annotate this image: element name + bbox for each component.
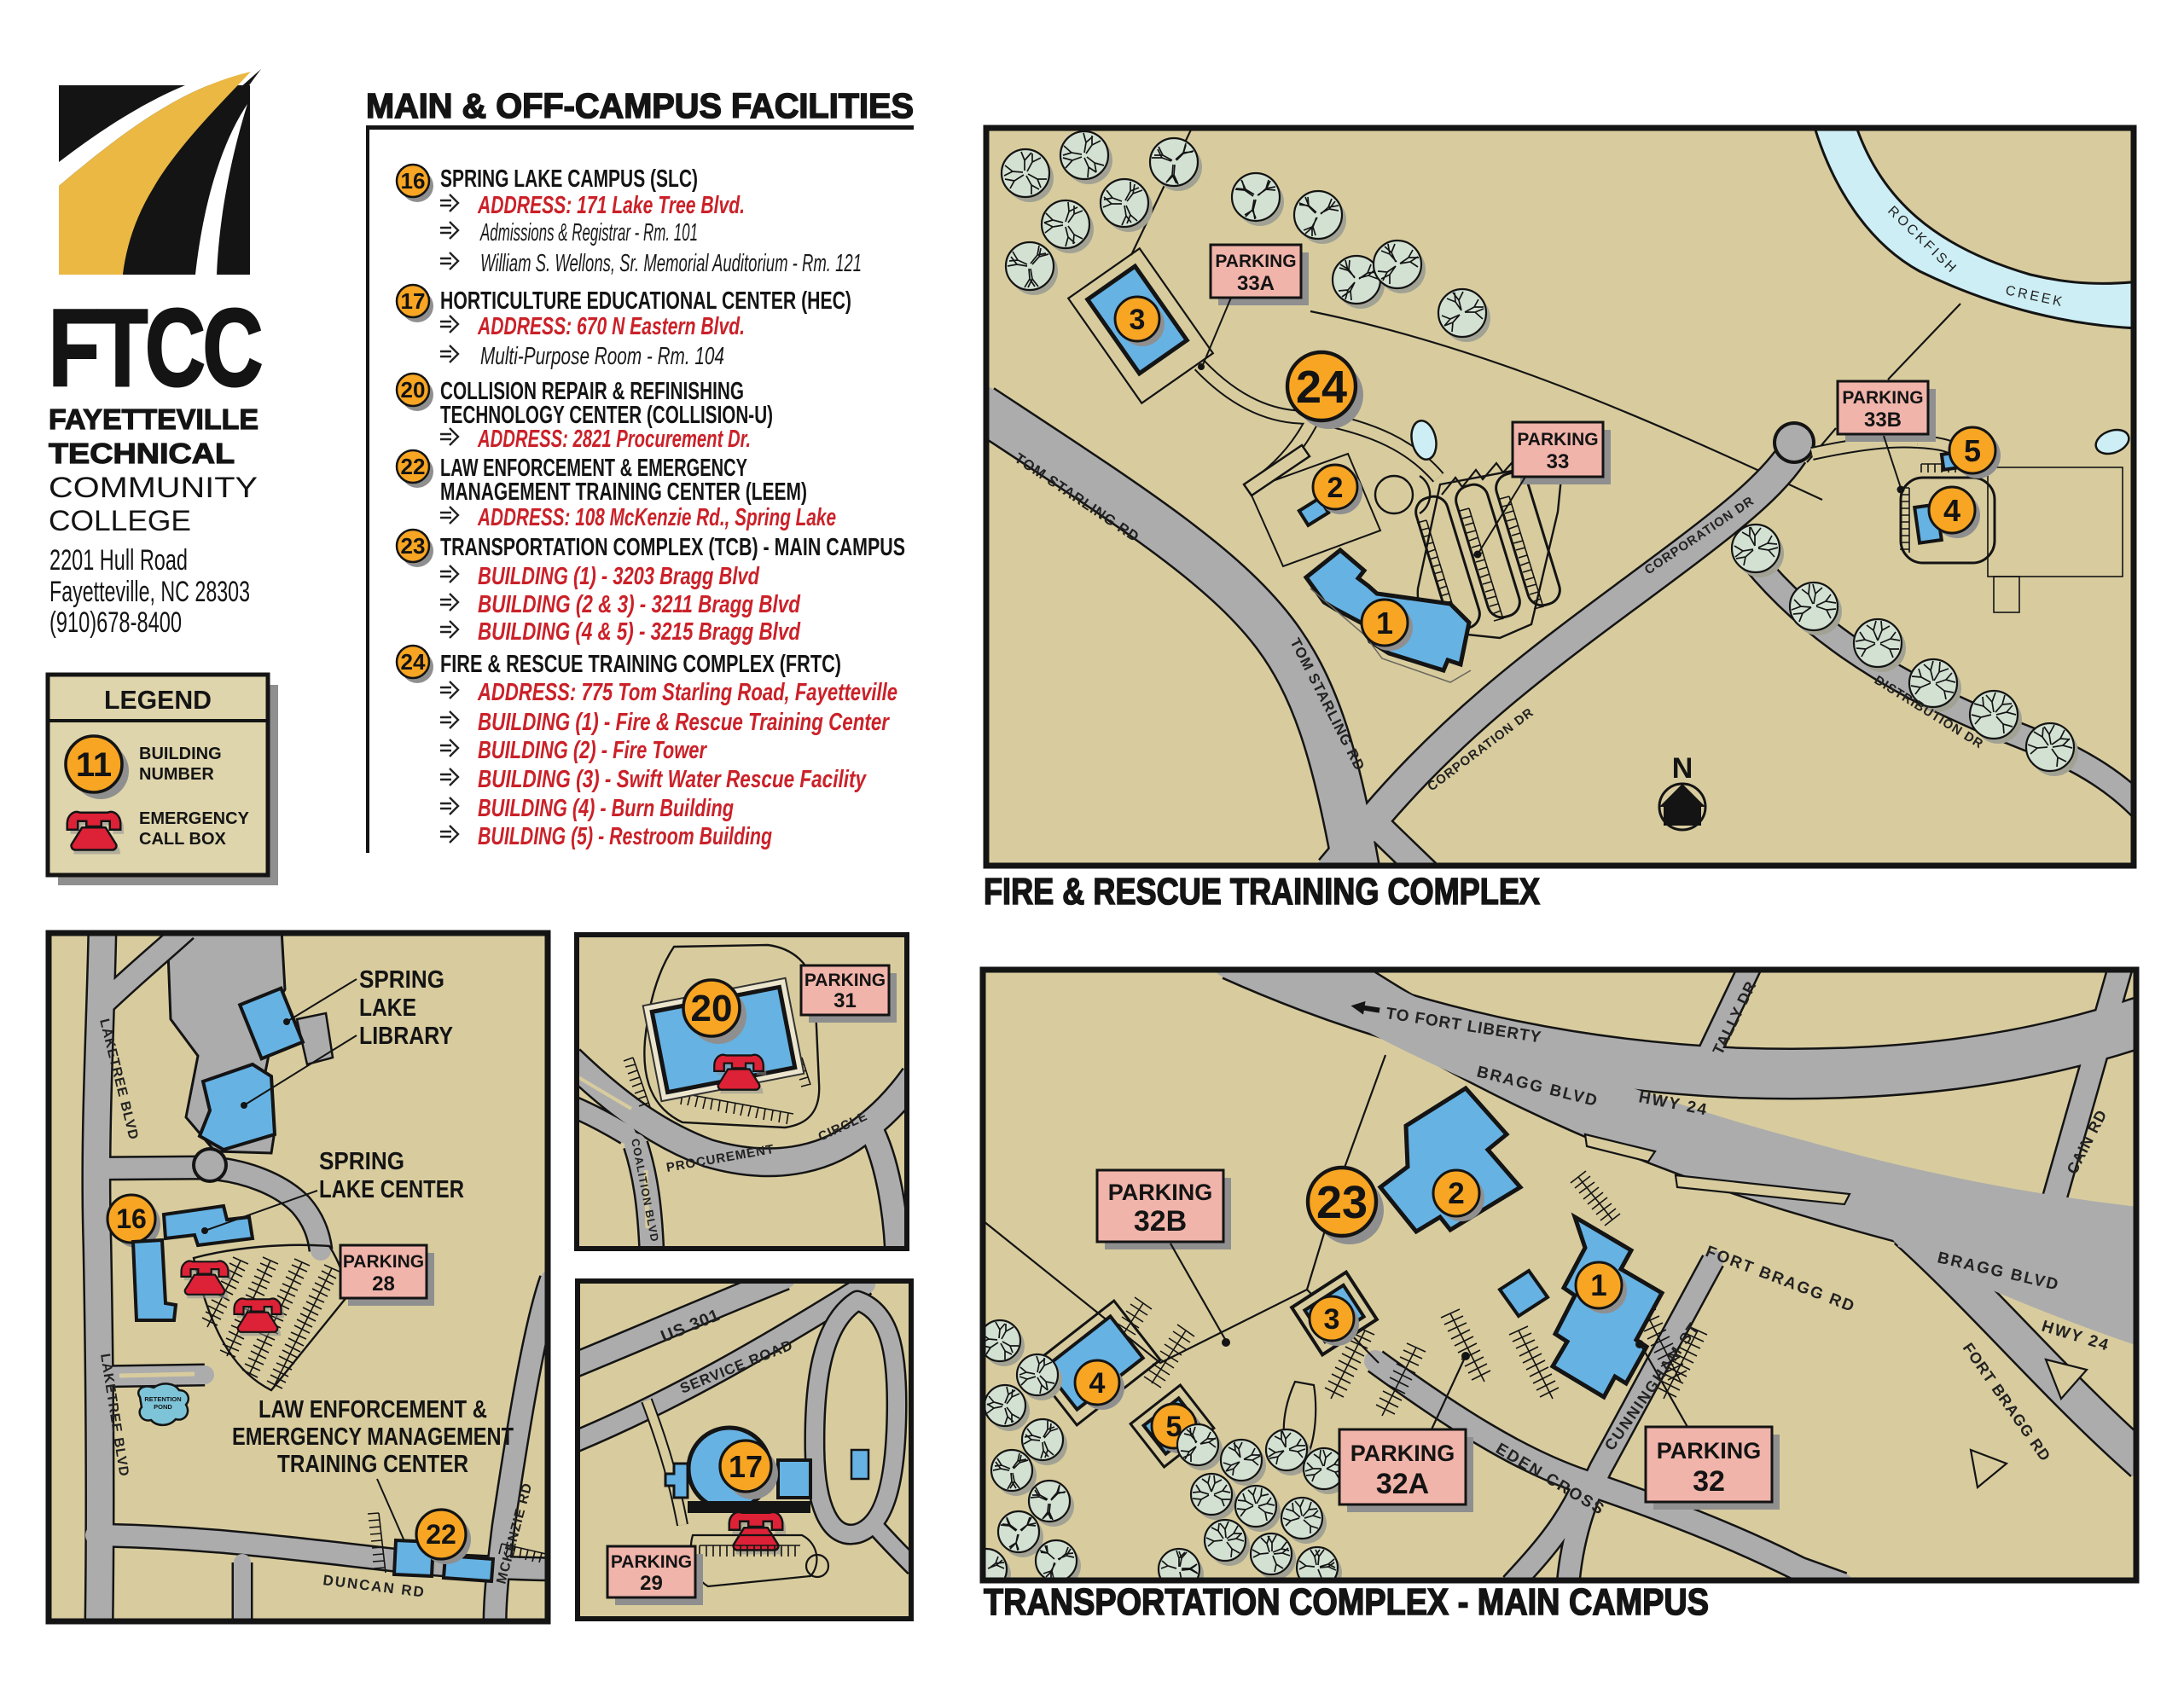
- svg-text:LIBRARY: LIBRARY: [359, 1023, 453, 1050]
- svg-text:COMMUNITY: COMMUNITY: [49, 472, 258, 504]
- svg-text:BUILDING (5) - Restroom Buildi: BUILDING (5) - Restroom Building: [478, 823, 772, 850]
- svg-text:(910)678-8400: (910)678-8400: [49, 606, 182, 639]
- svg-text:TRAINING CENTER: TRAINING CENTER: [277, 1451, 468, 1478]
- svg-text:FTCC: FTCC: [49, 287, 260, 409]
- svg-text:BUILDING (2 & 3) - 3211 Bragg: BUILDING (2 & 3) - 3211 Bragg Blvd: [478, 591, 801, 618]
- svg-text:PARKING: PARKING: [1350, 1441, 1455, 1466]
- svg-text:22: 22: [401, 454, 426, 479]
- svg-text:LAKE: LAKE: [359, 994, 416, 1022]
- svg-text:BUILDING (2) - Fire Tower: BUILDING (2) - Fire Tower: [478, 737, 707, 764]
- svg-text:17: 17: [729, 1449, 763, 1484]
- svg-text:TRANSPORTATION COMPLEX - MAIN: TRANSPORTATION COMPLEX - MAIN CAMPUS: [984, 1581, 1709, 1623]
- svg-text:29: 29: [640, 1572, 663, 1595]
- svg-text:2: 2: [1448, 1177, 1464, 1210]
- svg-text:PARKING: PARKING: [1657, 1438, 1762, 1464]
- svg-text:16: 16: [116, 1203, 147, 1234]
- svg-text:33B: 33B: [1864, 409, 1902, 432]
- svg-text:22: 22: [426, 1519, 456, 1550]
- svg-text:CALL BOX: CALL BOX: [139, 830, 227, 849]
- svg-text:Fayetteville, NC 28303: Fayetteville, NC 28303: [49, 576, 250, 608]
- svg-text:33A: 33A: [1237, 272, 1275, 295]
- svg-text:FIRE & RESCUE TRAINING COMPLEX: FIRE & RESCUE TRAINING COMPLEX (FRTC): [440, 651, 841, 678]
- svg-text:SPRING: SPRING: [359, 966, 444, 994]
- svg-text:NUMBER: NUMBER: [139, 765, 214, 784]
- svg-text:BUILDING (1) - Fire & Rescue T: BUILDING (1) - Fire & Rescue Training Ce…: [478, 709, 890, 736]
- svg-text:TECHNICAL: TECHNICAL: [49, 438, 235, 469]
- svg-text:PARKING: PARKING: [1108, 1180, 1213, 1205]
- svg-text:EMERGENCY MANAGEMENT: EMERGENCY MANAGEMENT: [232, 1423, 514, 1451]
- svg-text:32A: 32A: [1376, 1468, 1429, 1500]
- svg-text:FAYETTEVILLE: FAYETTEVILLE: [49, 403, 258, 435]
- svg-text:BUILDING (4 & 5) - 3215 Bragg: BUILDING (4 & 5) - 3215 Bragg Blvd: [478, 618, 801, 646]
- svg-text:20: 20: [691, 988, 733, 1029]
- svg-text:FIRE & RESCUE TRAINING COMPLEX: FIRE & RESCUE TRAINING COMPLEX: [984, 871, 1540, 913]
- svg-text:32B: 32B: [1134, 1205, 1187, 1238]
- svg-text:31: 31: [834, 989, 857, 1012]
- svg-text:33: 33: [1547, 450, 1570, 473]
- svg-text:COLLEGE: COLLEGE: [49, 505, 191, 537]
- svg-text:PARKING: PARKING: [343, 1252, 424, 1272]
- svg-text:17: 17: [401, 288, 426, 314]
- svg-text:5: 5: [1964, 433, 1981, 468]
- svg-text:SPRING LAKE CAMPUS (SLC): SPRING LAKE CAMPUS (SLC): [440, 165, 698, 193]
- svg-text:BUILDING (1) - 3203 Bragg Blvd: BUILDING (1) - 3203 Bragg Blvd: [478, 563, 760, 590]
- svg-text:2: 2: [1327, 472, 1344, 504]
- svg-text:23: 23: [401, 533, 426, 559]
- svg-text:SPRING: SPRING: [319, 1148, 404, 1175]
- svg-text:4: 4: [1089, 1367, 1106, 1400]
- svg-text:4: 4: [1943, 493, 1960, 528]
- svg-text:Admissions & Registrar - Rm. 1: Admissions & Registrar - Rm. 101: [479, 219, 698, 246]
- svg-text:32: 32: [1693, 1465, 1725, 1498]
- svg-text:MAIN & OFF-CAMPUS FACILITIES: MAIN & OFF-CAMPUS FACILITIES: [366, 86, 914, 125]
- svg-text:BUILDING: BUILDING: [139, 745, 222, 763]
- svg-text:PARKING: PARKING: [804, 971, 886, 990]
- svg-text:1: 1: [1376, 606, 1393, 641]
- svg-text:16: 16: [401, 168, 426, 194]
- svg-text:23: 23: [1316, 1177, 1368, 1228]
- svg-text:BUILDING (3) - Swift Water Res: BUILDING (3) - Swift Water Rescue Facili…: [478, 766, 867, 793]
- svg-text:ADDRESS: 2821 Procurement Dr.: ADDRESS: 2821 Procurement Dr.: [477, 426, 751, 453]
- svg-text:N: N: [1672, 752, 1693, 785]
- svg-text:ADDRESS: 108 McKenzie Rd., Spr: ADDRESS: 108 McKenzie Rd., Spring Lake: [477, 504, 836, 531]
- svg-text:EMERGENCY: EMERGENCY: [139, 809, 250, 828]
- svg-text:24: 24: [1296, 362, 1347, 413]
- svg-text:POND: POND: [154, 1403, 172, 1411]
- svg-text:RETENTION: RETENTION: [144, 1395, 181, 1403]
- svg-text:PARKING: PARKING: [1215, 252, 1296, 271]
- svg-text:1: 1: [1590, 1269, 1606, 1302]
- svg-text:ADDRESS: 775 Tom Starling Roa: ADDRESS: 775 Tom Starling Road, Fayettev…: [477, 679, 897, 706]
- svg-text:PARKING: PARKING: [1842, 388, 1923, 408]
- svg-text:BUILDING (4) - Burn Building: BUILDING (4) - Burn Building: [478, 795, 734, 822]
- svg-text:LEGEND: LEGEND: [104, 685, 212, 715]
- svg-text:William S. Wellons, Sr. Memori: William S. Wellons, Sr. Memorial Auditor…: [480, 250, 862, 277]
- svg-text:ADDRESS: 171 Lake Tree Blvd.: ADDRESS: 171 Lake Tree Blvd.: [477, 192, 745, 219]
- svg-text:28: 28: [372, 1272, 395, 1296]
- svg-text:ADDRESS: 670 N Eastern Blvd.: ADDRESS: 670 N Eastern Blvd.: [477, 313, 745, 340]
- svg-text:PARKING: PARKING: [1517, 430, 1598, 449]
- svg-text:TRANSPORTATION COMPLEX (TCB) -: TRANSPORTATION COMPLEX (TCB) - MAIN CAMP…: [440, 534, 905, 561]
- svg-text:PARKING: PARKING: [611, 1552, 692, 1572]
- svg-text:3: 3: [1130, 304, 1146, 336]
- svg-text:20: 20: [401, 377, 426, 403]
- svg-text:2201 Hull Road: 2201 Hull Road: [49, 544, 188, 577]
- svg-text:LAKE CENTER: LAKE CENTER: [319, 1176, 464, 1203]
- svg-text:LAW ENFORCEMENT &: LAW ENFORCEMENT &: [258, 1396, 487, 1423]
- svg-text:24: 24: [401, 649, 426, 675]
- svg-text:HORTICULTURE EDUCATIONAL CENTE: HORTICULTURE EDUCATIONAL CENTER (HEC): [440, 287, 851, 315]
- svg-text:MANAGEMENT TRAINING CENTER (LE: MANAGEMENT TRAINING CENTER (LEEM): [440, 478, 807, 506]
- svg-text:Multi-Purpose Room - Rm. 104: Multi-Purpose Room - Rm. 104: [480, 343, 724, 370]
- svg-text:3: 3: [1324, 1303, 1340, 1336]
- svg-text:11: 11: [76, 746, 112, 784]
